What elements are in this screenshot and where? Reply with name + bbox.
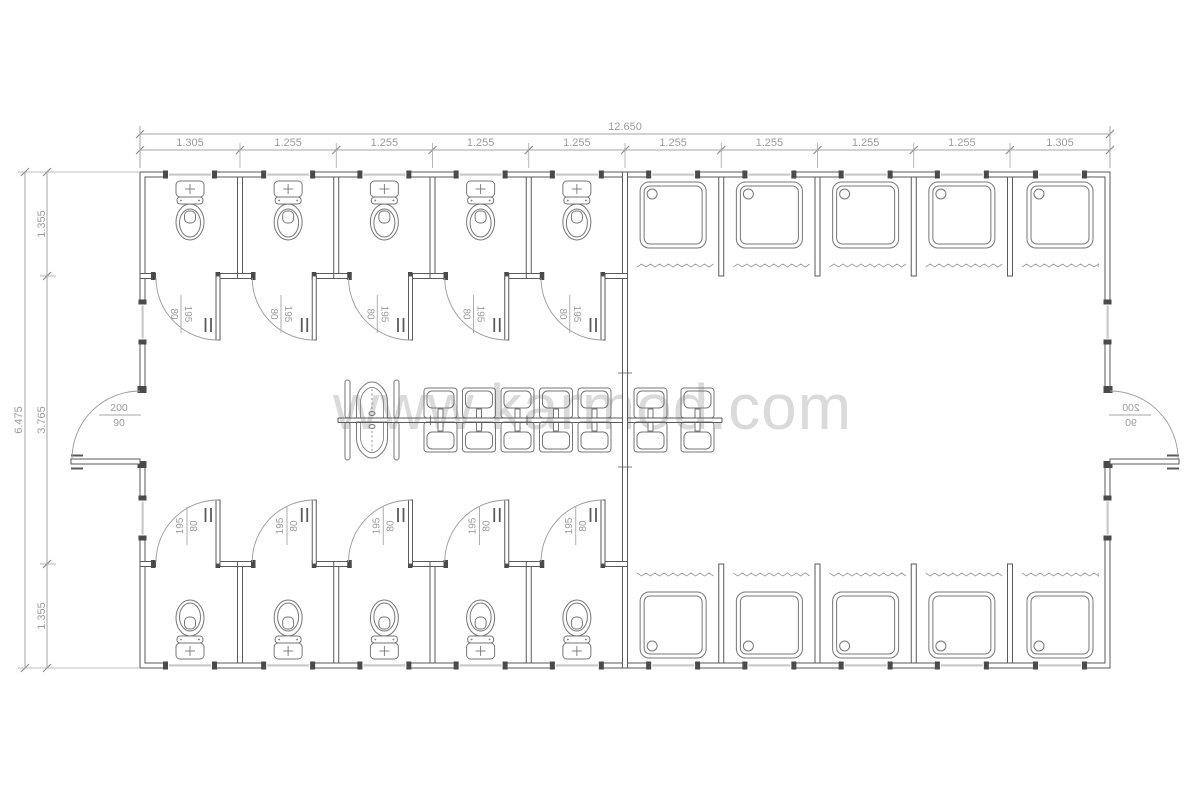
external-door-size-num: 200	[1122, 402, 1140, 414]
dimension-label-top-segment: 1.255	[371, 137, 399, 149]
shower-stall	[733, 573, 810, 658]
shower-stall	[830, 182, 907, 267]
shower-drain	[647, 641, 657, 651]
dimension-label-overall-height: 6.475	[13, 406, 25, 434]
stall-door	[526, 500, 627, 568]
shower-stall	[733, 182, 810, 267]
partition-wall	[238, 564, 243, 663]
stall-door-leaf	[505, 500, 509, 564]
stall-door	[238, 500, 339, 568]
partition-wall	[815, 177, 820, 276]
shower-curtain	[733, 264, 810, 267]
stall-door-size-num: 195	[564, 517, 575, 534]
shower-drain	[743, 641, 753, 651]
stall-door-leaf	[216, 500, 220, 564]
window	[163, 662, 217, 670]
shower-stall	[1022, 182, 1099, 267]
partition-wall	[334, 564, 339, 663]
shower-curtain	[926, 573, 1003, 576]
shower-drain	[743, 189, 753, 199]
stall-door-leaf	[601, 276, 605, 340]
external-door-leaf	[1110, 459, 1179, 464]
toilet	[274, 181, 302, 240]
partition-wall	[1008, 564, 1013, 663]
partition-wall	[430, 564, 435, 663]
dimension-label-left-segment: 3.765	[36, 406, 48, 434]
external-door-arc	[72, 391, 140, 459]
partition-wall	[1008, 177, 1013, 276]
shower-curtain	[1022, 264, 1099, 267]
partition-wall	[719, 564, 724, 663]
shower-curtain	[830, 264, 907, 267]
shower-tray	[1031, 596, 1089, 654]
shower-tray	[933, 186, 991, 244]
window	[261, 171, 315, 179]
faucet	[438, 409, 443, 418]
partition-wall	[911, 564, 916, 663]
stall-door-leaf	[409, 276, 413, 340]
shower-stall	[637, 573, 714, 658]
stall-door-label: 19580	[268, 295, 293, 333]
dimension-label-top-segment: 1.255	[659, 137, 687, 149]
dimension-label-top-segment: 1.255	[563, 137, 591, 149]
window	[935, 662, 989, 670]
stall-door-label: 19580	[468, 507, 493, 545]
dimension-label-top-segment: 1.255	[467, 137, 495, 149]
stall-door-size-den: 80	[268, 308, 279, 320]
shower-stall	[926, 573, 1003, 658]
stall-door-size-den: 80	[364, 308, 375, 320]
stall-door-size-den: 80	[289, 520, 300, 532]
external-door-left: 20090	[71, 386, 147, 469]
stall-door-size-num: 195	[275, 517, 286, 534]
toilet	[370, 600, 398, 659]
shower-tray	[1031, 186, 1089, 244]
window	[357, 662, 411, 670]
stall-door-size-num: 195	[468, 517, 479, 534]
stall-door	[430, 500, 531, 568]
faucet	[477, 409, 482, 418]
faucet	[592, 422, 597, 431]
window	[742, 171, 796, 179]
toilet	[467, 600, 495, 659]
shower-tray	[644, 596, 702, 654]
stall-door-size-num: 195	[182, 306, 193, 323]
shower-drain	[936, 641, 946, 651]
stall-door-leaf	[505, 276, 509, 340]
window	[550, 662, 604, 670]
partition-wall	[526, 564, 531, 663]
shower-stall	[1022, 573, 1099, 658]
stall-door	[140, 500, 243, 568]
dimension-label-top-segment: 1.305	[176, 137, 204, 149]
dimension-label-left-segment: 1.355	[36, 602, 48, 630]
shower-tray	[740, 186, 798, 244]
shower-tray	[740, 596, 798, 654]
dimension-label-left-segment: 1.355	[36, 210, 48, 238]
stall-door-leaf	[312, 276, 316, 340]
external-door-label: 20090	[1109, 402, 1151, 429]
shower-curtain	[830, 573, 907, 576]
window	[1033, 171, 1087, 179]
window	[742, 662, 796, 670]
stall-door-size-den: 80	[482, 520, 493, 532]
stall-door-size-num: 195	[571, 306, 582, 323]
shower-tray	[644, 186, 702, 244]
window	[261, 662, 315, 670]
shower-curtain	[637, 264, 714, 267]
dimension-label-top-segment: 1.255	[948, 137, 976, 149]
toilet	[563, 181, 591, 240]
shower-tray	[933, 596, 991, 654]
divider-wall	[623, 172, 628, 668]
shower-drain	[647, 189, 657, 199]
faucet	[515, 422, 520, 431]
faucet	[554, 422, 559, 431]
external-door: 20090	[1104, 386, 1180, 469]
window	[139, 496, 147, 541]
window	[357, 171, 411, 179]
stall-door-label: 19580	[557, 295, 582, 333]
stall-door-label: 19580	[275, 507, 300, 545]
external-door-arc	[1110, 391, 1178, 459]
faucet	[477, 422, 482, 431]
faucet	[648, 422, 653, 431]
partition-wall	[430, 177, 435, 276]
window	[935, 171, 989, 179]
dimension-label-top-segment: 1.255	[756, 137, 784, 149]
stall-door-size-num: 195	[378, 306, 389, 323]
dimension-label-overall-width: 12.650	[608, 121, 642, 133]
window	[163, 171, 217, 179]
window	[454, 171, 508, 179]
dimension-label-top-segment: 1.255	[852, 137, 880, 149]
external-door-leaf	[71, 459, 140, 464]
stall-door-size-den: 80	[461, 308, 472, 320]
toilet	[467, 181, 495, 240]
partition-wall	[815, 564, 820, 663]
floor-plan-canvas: www.karmod.com12.6501.3051.2551.2551.255…	[0, 0, 1200, 800]
shower-drain	[1034, 641, 1044, 651]
toilet	[370, 181, 398, 240]
window	[550, 171, 604, 179]
toilet	[176, 181, 204, 240]
window	[1033, 662, 1087, 670]
stall-door-label: 19580	[364, 295, 389, 333]
partition-wall	[334, 177, 339, 276]
faucet	[515, 409, 520, 418]
shower-curtain	[637, 573, 714, 576]
faucet	[554, 409, 559, 418]
stall-door-label: 19580	[371, 507, 396, 545]
faucet	[695, 422, 700, 431]
window	[1104, 496, 1112, 541]
partition-wall	[526, 177, 531, 276]
external-door-size-den: 90	[113, 417, 125, 429]
partition-wall	[719, 177, 724, 276]
window	[839, 662, 893, 670]
stall-door-size-den: 80	[578, 520, 589, 532]
window	[646, 662, 700, 670]
stall-door-size-num: 195	[371, 517, 382, 534]
shower-curtain	[733, 573, 810, 576]
toilet	[176, 600, 204, 659]
stall-door-size-num: 195	[475, 306, 486, 323]
stall-door	[334, 500, 435, 568]
external-door: 20090	[71, 386, 147, 469]
stall-door-size-den: 80	[168, 308, 179, 320]
stall-door-label: 19580	[461, 295, 486, 333]
external-door-size-den: 90	[1125, 417, 1137, 429]
shower-drain	[936, 189, 946, 199]
shower-drain	[840, 189, 850, 199]
shower-stall	[637, 182, 714, 267]
shower-drain	[840, 641, 850, 651]
shower-tray	[837, 596, 895, 654]
external-door-size-num: 200	[110, 402, 128, 414]
stall-door-size-den: 80	[385, 520, 396, 532]
window	[1104, 300, 1112, 345]
window	[139, 300, 147, 345]
window	[646, 171, 700, 179]
dimension-label-top-segment: 1.255	[274, 137, 302, 149]
window	[454, 662, 508, 670]
shower-stall	[926, 182, 1003, 267]
window	[839, 171, 893, 179]
stall-door-label: 19580	[564, 507, 589, 545]
external-door-right: 20090	[1104, 386, 1180, 469]
floor-plan: www.karmod.com12.6501.3051.2551.2551.255…	[0, 0, 1200, 800]
shower-curtain	[1022, 573, 1099, 576]
faucet	[438, 422, 443, 431]
shower-drain	[1034, 189, 1044, 199]
stall-door-leaf	[601, 500, 605, 564]
stall-door-leaf	[216, 276, 220, 340]
stall-door-leaf	[409, 500, 413, 564]
stall-door-size-den: 80	[557, 308, 568, 320]
partition-wall	[911, 177, 916, 276]
stall-door-leaf	[312, 500, 316, 564]
shower-stall	[830, 573, 907, 658]
partition-wall	[238, 177, 243, 276]
shower-curtain	[926, 264, 1003, 267]
external-door-label: 20090	[99, 402, 141, 429]
faucet	[592, 409, 597, 418]
faucet	[648, 409, 653, 418]
stall-door-size-den: 80	[189, 520, 200, 532]
toilet	[563, 600, 591, 659]
stall-door-label: 19580	[175, 507, 200, 545]
stall-door-size-num: 195	[282, 306, 293, 323]
stall-door-size-num: 195	[175, 517, 186, 534]
shower-tray	[837, 186, 895, 244]
walls	[140, 172, 1110, 668]
dimension-label-top-segment: 1.305	[1046, 137, 1074, 149]
toilet	[274, 600, 302, 659]
faucet	[695, 409, 700, 418]
